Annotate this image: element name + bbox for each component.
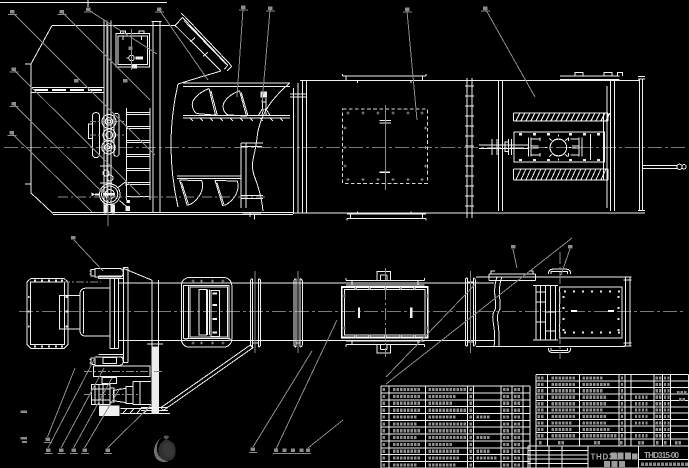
svg-text:THD315-00: THD315-00 bbox=[644, 451, 680, 460]
